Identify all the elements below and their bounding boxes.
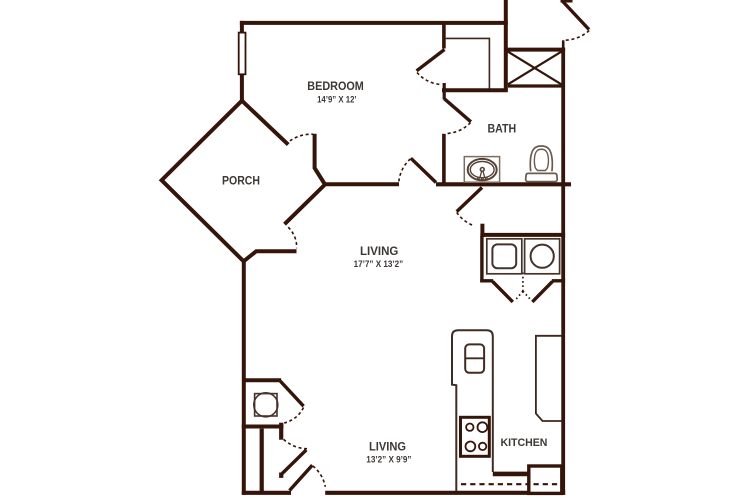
svg-text:17’7” X 13’2”: 17’7” X 13’2”	[354, 259, 404, 269]
svg-text:BATH: BATH	[488, 121, 517, 135]
svg-text:13’2” X 9’9”: 13’2” X 9’9”	[366, 454, 411, 464]
svg-text:KITCHEN: KITCHEN	[501, 437, 548, 449]
svg-text:14’9” X 12’: 14’9” X 12’	[317, 94, 357, 104]
svg-text:LIVING: LIVING	[369, 440, 406, 454]
svg-text:PORCH: PORCH	[222, 174, 260, 188]
svg-text:LIVING: LIVING	[360, 244, 398, 258]
svg-text:BEDROOM: BEDROOM	[307, 79, 364, 93]
